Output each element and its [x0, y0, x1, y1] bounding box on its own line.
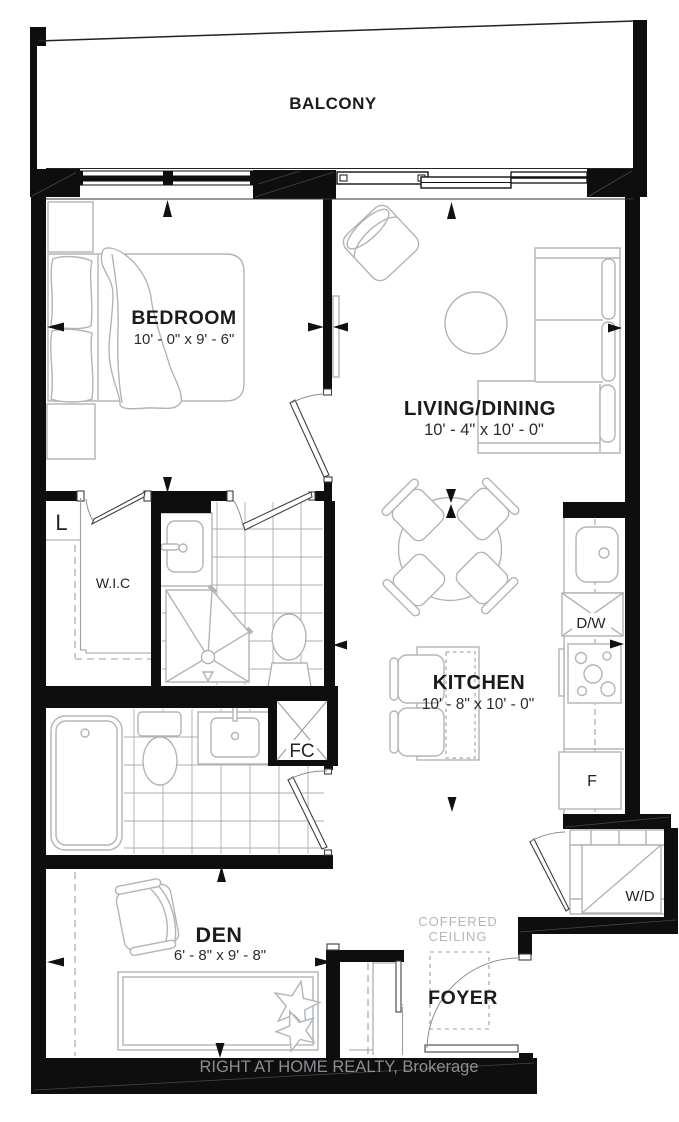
svg-text:10' - 4" x 10' - 0": 10' - 4" x 10' - 0"	[424, 421, 544, 439]
svg-text:COFFERED: COFFERED	[418, 914, 498, 929]
svg-text:FOYER: FOYER	[428, 987, 498, 1009]
svg-text:10' - 0" x 9' - 6": 10' - 0" x 9' - 6"	[134, 331, 235, 348]
svg-text:KITCHEN: KITCHEN	[433, 672, 525, 694]
svg-text:W.I.C: W.I.C	[96, 575, 130, 591]
svg-text:10' - 8" x 10' - 0": 10' - 8" x 10' - 0"	[422, 696, 535, 713]
svg-text:BALCONY: BALCONY	[289, 94, 377, 113]
svg-text:D/W: D/W	[576, 615, 606, 632]
svg-text:F: F	[587, 773, 597, 790]
svg-text:FC: FC	[289, 741, 314, 762]
svg-text:L: L	[55, 510, 67, 535]
svg-text:W/D: W/D	[625, 888, 654, 905]
svg-text:DEN: DEN	[196, 923, 243, 947]
svg-text:LIVING/DINING: LIVING/DINING	[404, 397, 556, 420]
svg-text:BEDROOM: BEDROOM	[131, 307, 236, 329]
svg-text:RIGHT AT HOME REALTY, Brokerag: RIGHT AT HOME REALTY, Brokerage	[199, 1058, 478, 1076]
svg-text:6' - 8" x 9' - 8": 6' - 8" x 9' - 8"	[174, 947, 266, 964]
svg-text:CEILING: CEILING	[428, 929, 487, 944]
